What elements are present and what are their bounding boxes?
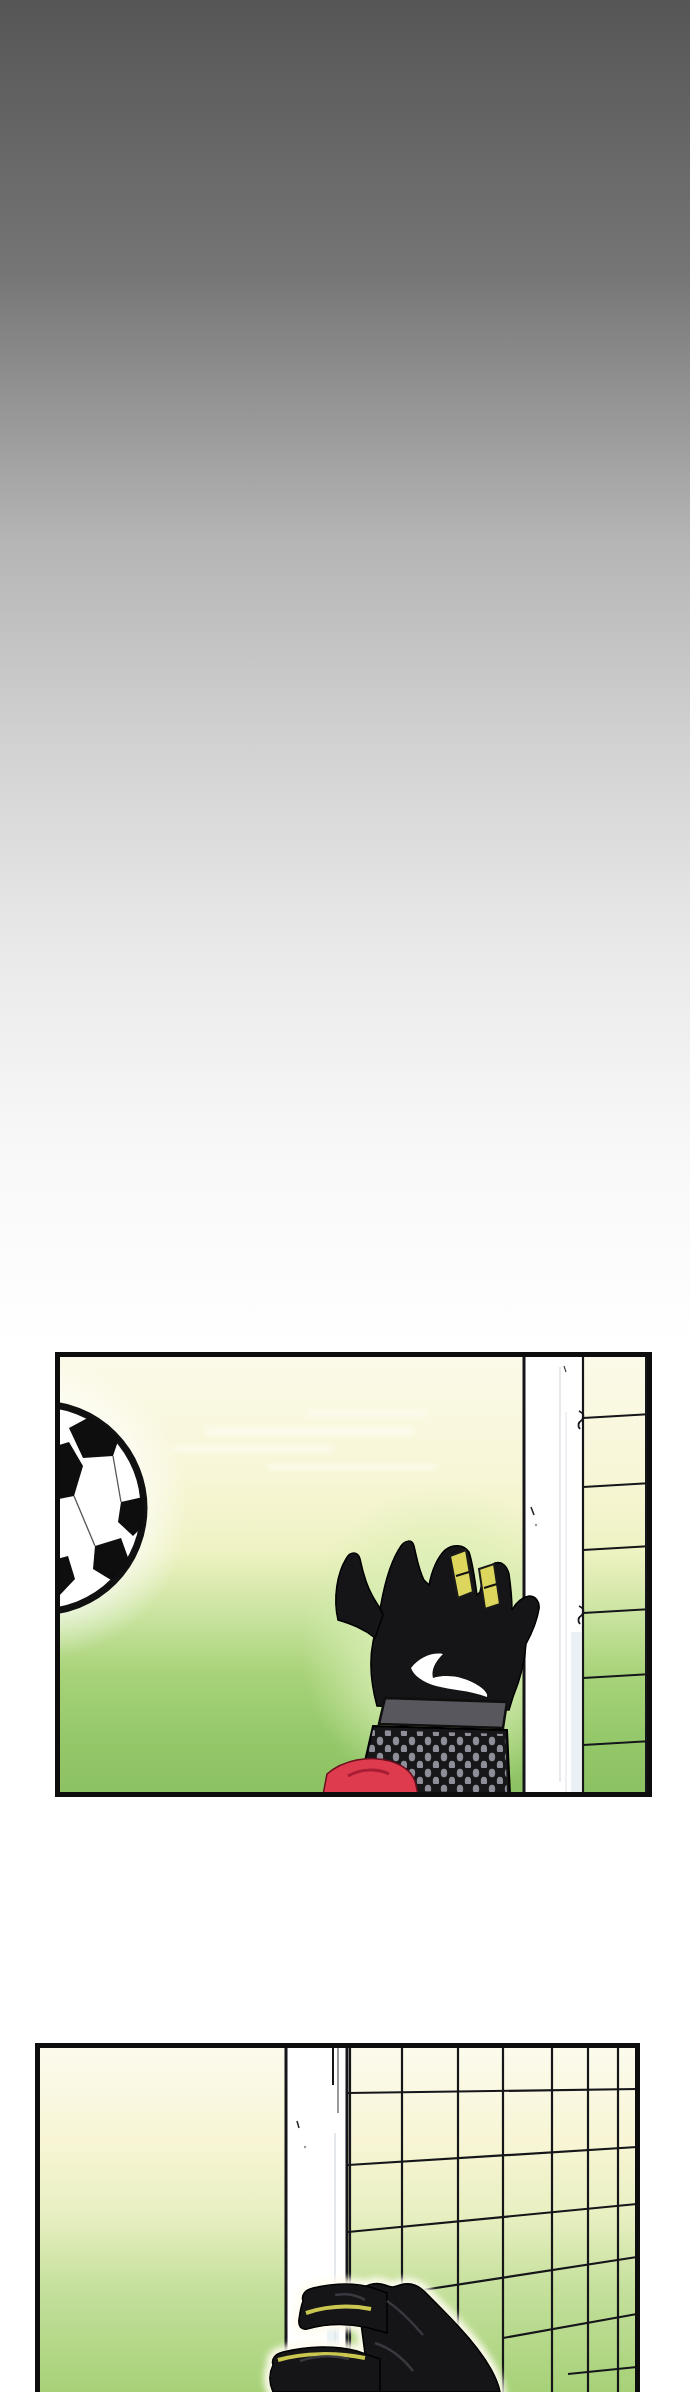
comic-page (0, 0, 690, 2392)
comic-panel-2 (35, 2043, 640, 2392)
page-background-gradient (0, 0, 690, 1352)
panel-1-artwork (55, 1352, 652, 1797)
goal-post (523, 1352, 583, 1797)
goal-post (285, 2043, 348, 2392)
wrist-band (379, 1698, 507, 1728)
panel-2-artwork (35, 2043, 640, 2392)
comic-panel-1 (55, 1352, 652, 1797)
